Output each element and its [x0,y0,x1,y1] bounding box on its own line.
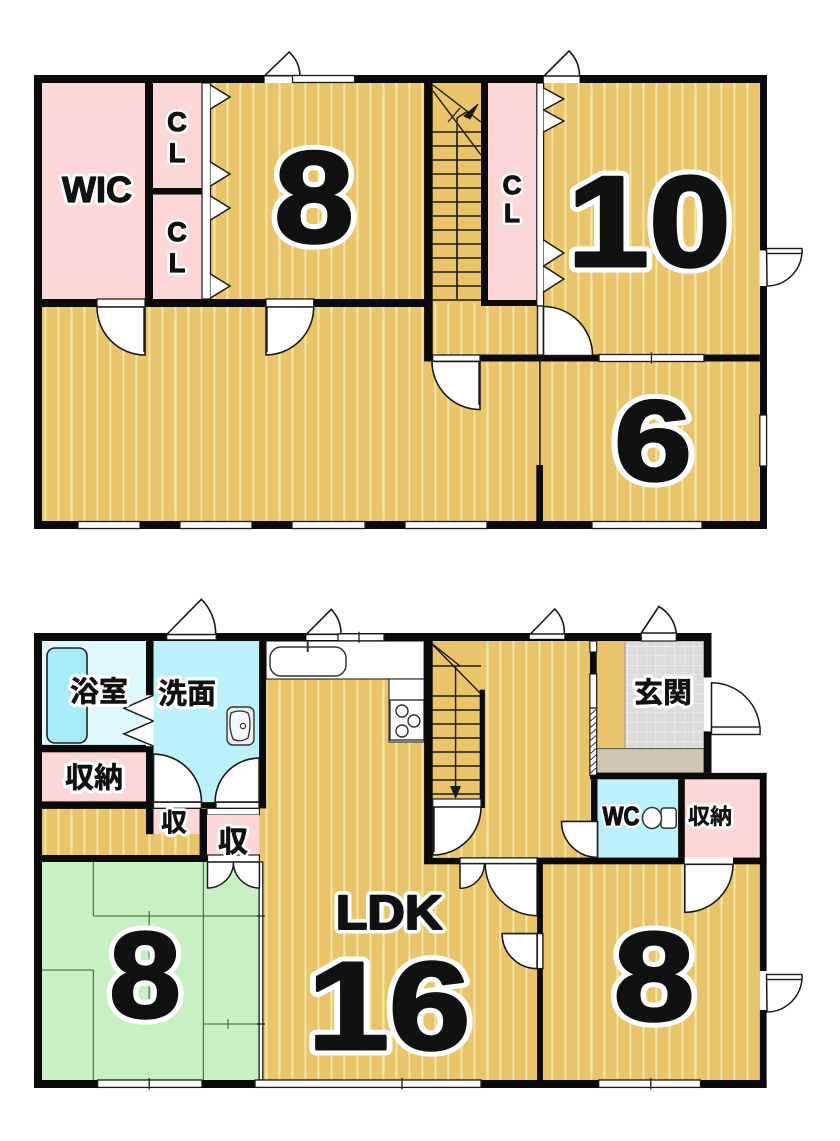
svg-text:L: L [169,248,186,278]
svg-text:WC: WC [603,802,640,831]
svg-text:8: 8 [274,124,354,270]
svg-text:C: C [167,107,187,137]
svg-text:16: 16 [308,936,471,1076]
svg-text:C: C [503,170,522,200]
svg-text:WIC: WIC [62,169,132,210]
svg-text:8: 8 [109,907,180,1044]
svg-text:6: 6 [614,377,691,504]
svg-text:8: 8 [614,906,695,1047]
svg-text:LDK: LDK [336,886,443,940]
svg-text:C: C [167,217,187,247]
svg-text:10: 10 [567,150,731,294]
svg-text:L: L [504,198,520,228]
svg-text:L: L [169,138,186,168]
